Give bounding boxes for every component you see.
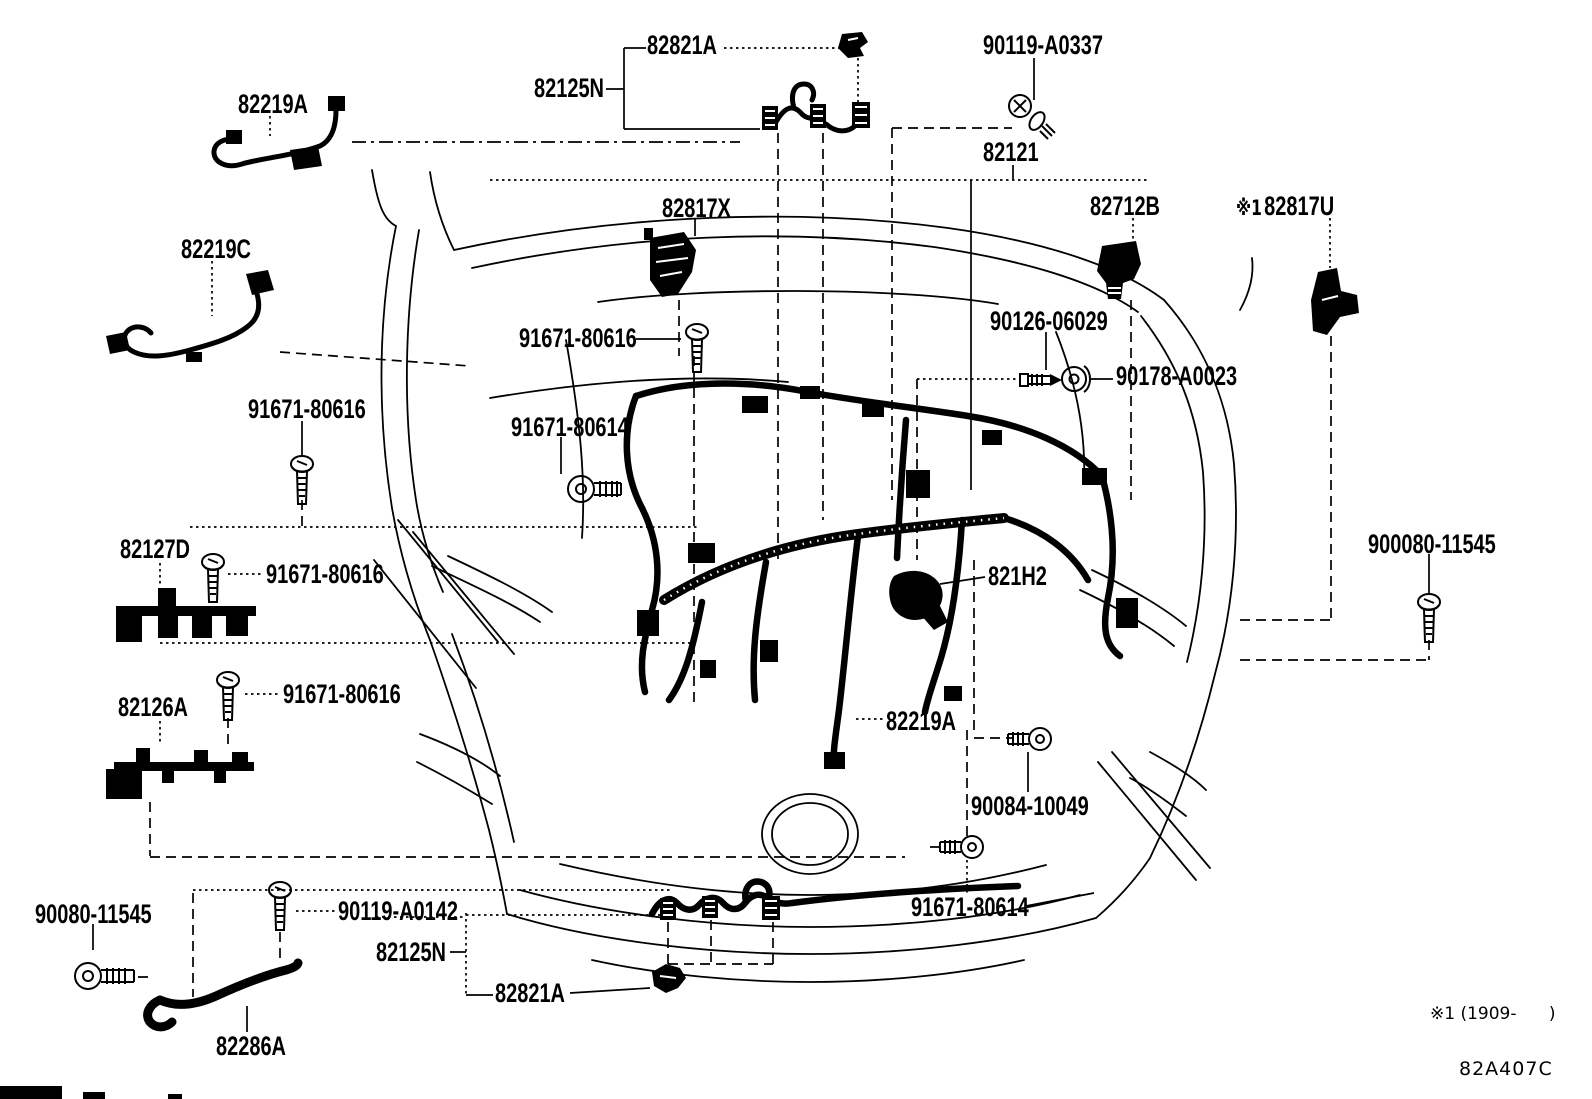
callout-90084-10049: 90084-10049: [971, 794, 1089, 818]
bolt-icon-91671-80614-bottom: [940, 836, 983, 858]
bolt-icon-90084-10049: [1008, 728, 1051, 750]
callout-82219A-center: 82219A: [886, 709, 956, 733]
callout-821H2: 821H2: [988, 564, 1047, 588]
callout-90080-11545: 90080-11545: [35, 902, 152, 926]
callout-91671-80616-center: 91671-80616: [519, 326, 637, 350]
callout-82125N-bottom: 82125N: [376, 940, 446, 964]
bolt-icon-90119-A0337: [1009, 95, 1055, 139]
bolt-icon-90126-06029: [1020, 374, 1062, 386]
grommet-icon-90178-A0023: [1062, 366, 1090, 392]
callout-90119-A0142: 90119-A0142: [338, 899, 458, 923]
screw-icon-91671-80616-left: [291, 456, 313, 504]
callout-82817U: ※182817U: [1236, 194, 1334, 220]
callout-82817X: 82817X: [662, 196, 731, 220]
callout-91671-80614-center: 91671-80614: [511, 415, 629, 439]
callout-text: 82817U: [1264, 191, 1334, 221]
ref-mark: ※1: [1236, 196, 1262, 220]
callout-91671-80616-mid: 91671-80616: [266, 562, 384, 586]
diagram-artwork: [0, 0, 1592, 1099]
callout-91671-80614-bottom: 91671-80614: [911, 895, 1029, 919]
screw-icon-900080-11545: [1418, 594, 1440, 642]
callout-82125N-top: 82125N: [534, 76, 604, 100]
screw-icon-91671-80616-mid: [202, 554, 224, 602]
callout-90126-06029: 90126-06029: [990, 309, 1108, 333]
screw-icon-91671-80616-lower: [217, 672, 239, 720]
callout-82821A-top: 82821A: [647, 33, 717, 57]
callout-91671-80616-lower: 91671-80616: [283, 682, 401, 706]
callout-82126A: 82126A: [118, 695, 188, 719]
applicability-footnote: ※1 (1909- ): [1430, 1004, 1556, 1024]
parts-diagram-page: 82821A 82125N 90119-A0337 82219A 82121 8…: [0, 0, 1592, 1099]
callout-82127D: 82127D: [120, 537, 190, 561]
callout-91671-80616-left: 91671-80616: [248, 397, 366, 421]
screw-icon-91671-80616-center: [686, 324, 708, 372]
callout-82712B: 82712B: [1090, 194, 1160, 218]
diagram-code: 82A407C: [1459, 1058, 1553, 1080]
callout-90119-A0337: 90119-A0337: [983, 33, 1103, 57]
callout-82121: 82121: [983, 140, 1039, 164]
callout-82219A-upper: 82219A: [238, 92, 308, 116]
callout-82219C: 82219C: [181, 237, 251, 261]
screw-icon-90080-11545: [75, 963, 134, 989]
bolt-icon-91671-80614-center: [568, 476, 621, 502]
callout-82286A: 82286A: [216, 1034, 286, 1058]
callout-82821A-bottom: 82821A: [495, 981, 565, 1005]
callout-900080-11545: 900080-11545: [1368, 532, 1496, 556]
callout-90178-A0023: 90178-A0023: [1116, 364, 1237, 388]
